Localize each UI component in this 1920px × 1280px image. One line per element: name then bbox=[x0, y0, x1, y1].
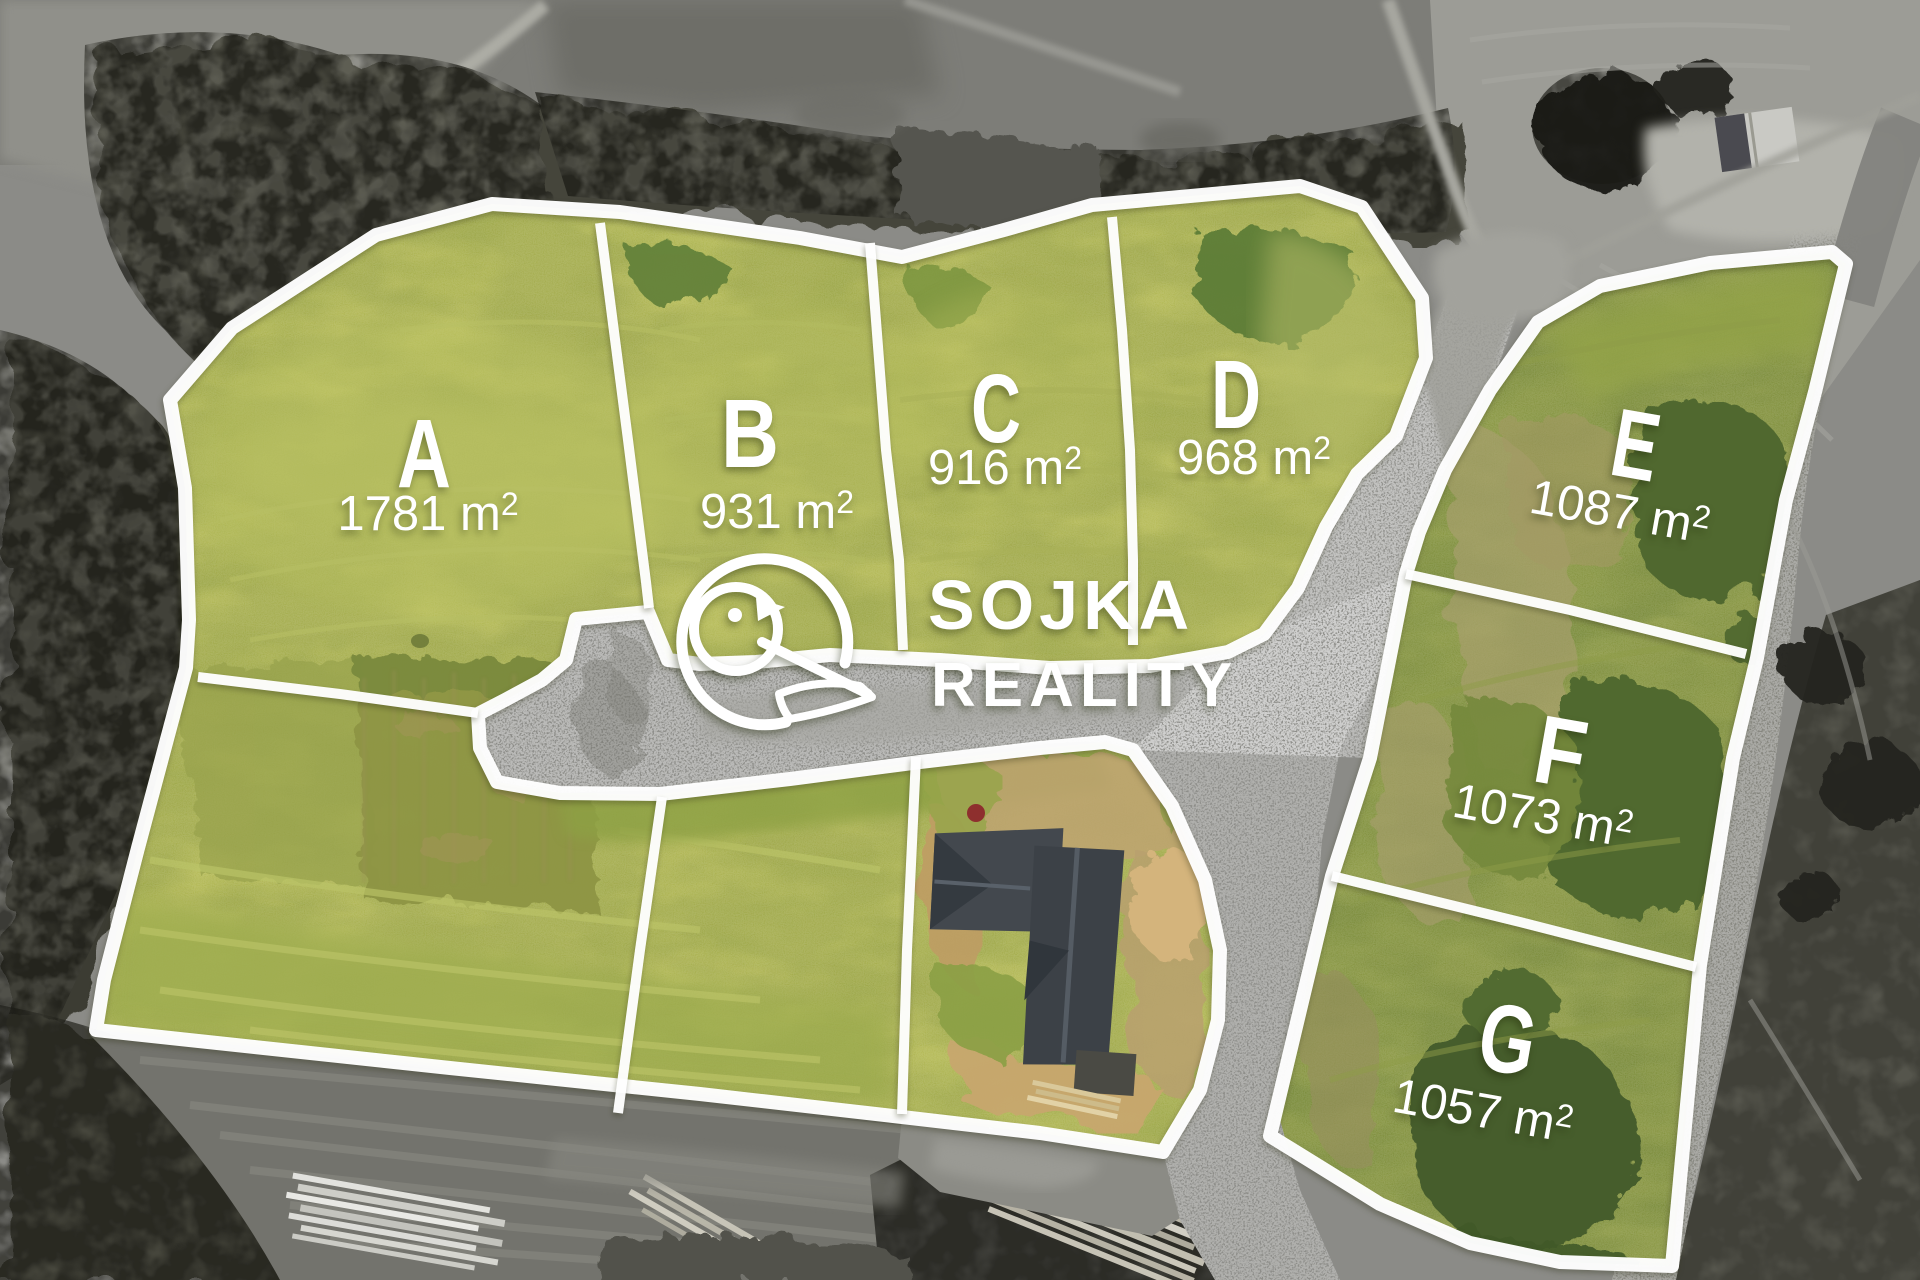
svg-text:SOJKA: SOJKA bbox=[928, 566, 1194, 644]
svg-text:916 m2: 916 m2 bbox=[928, 440, 1082, 495]
svg-text:REALITY: REALITY bbox=[931, 651, 1238, 720]
svg-text:B: B bbox=[721, 379, 779, 488]
svg-text:968 m2: 968 m2 bbox=[1177, 430, 1331, 485]
svg-text:931 m2: 931 m2 bbox=[700, 484, 854, 539]
svg-text:1781 m2: 1781 m2 bbox=[337, 486, 518, 541]
